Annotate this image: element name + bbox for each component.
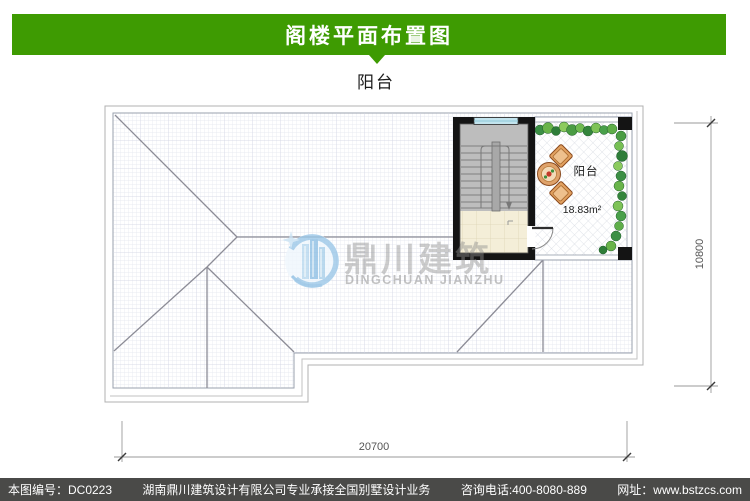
column-bottom-right bbox=[618, 247, 632, 260]
dimension-height-value: 10800 bbox=[694, 239, 706, 270]
balcony-label: 阳台 bbox=[574, 164, 599, 178]
floor-plan-drawing: 阳台 bbox=[0, 0, 750, 501]
dimension-height: 10800 bbox=[674, 116, 718, 393]
footer-phone: 咨询电话:400-8080-889 bbox=[461, 481, 587, 498]
top-balcony-label: 阳台 bbox=[357, 73, 395, 92]
dimension-width-value: 20700 bbox=[359, 441, 390, 453]
stair-divider-wall bbox=[492, 142, 500, 211]
footer-drawing-number: 本图编号：DC0223 bbox=[8, 481, 112, 498]
patio-table bbox=[538, 163, 561, 186]
dimension-width: 20700 bbox=[114, 421, 635, 462]
footer-bar: 本图编号：DC0223 湖南鼎川建筑设计有限公司专业承接全国别墅设计业务 咨询电… bbox=[0, 478, 750, 501]
page-title-bar: 阁楼平面布置图 bbox=[12, 14, 726, 55]
page-title: 阁楼平面布置图 bbox=[285, 20, 453, 50]
page: 阁楼平面布置图 阳台 bbox=[0, 0, 750, 501]
door-opening bbox=[527, 226, 536, 247]
balcony: 阳台 18.83m² bbox=[535, 117, 632, 260]
footer-company: 湖南鼎川建筑设计有限公司专业承接全国别墅设计业务 bbox=[142, 481, 430, 498]
watermark-en: DINGCHUAN JIANZHU bbox=[345, 273, 505, 287]
header-pointer-icon bbox=[369, 55, 385, 64]
balcony-area-label: 18.83m² bbox=[563, 204, 602, 216]
column-top-right bbox=[618, 117, 632, 130]
footer-website: 网址：www.bstzcs.com bbox=[617, 481, 742, 498]
